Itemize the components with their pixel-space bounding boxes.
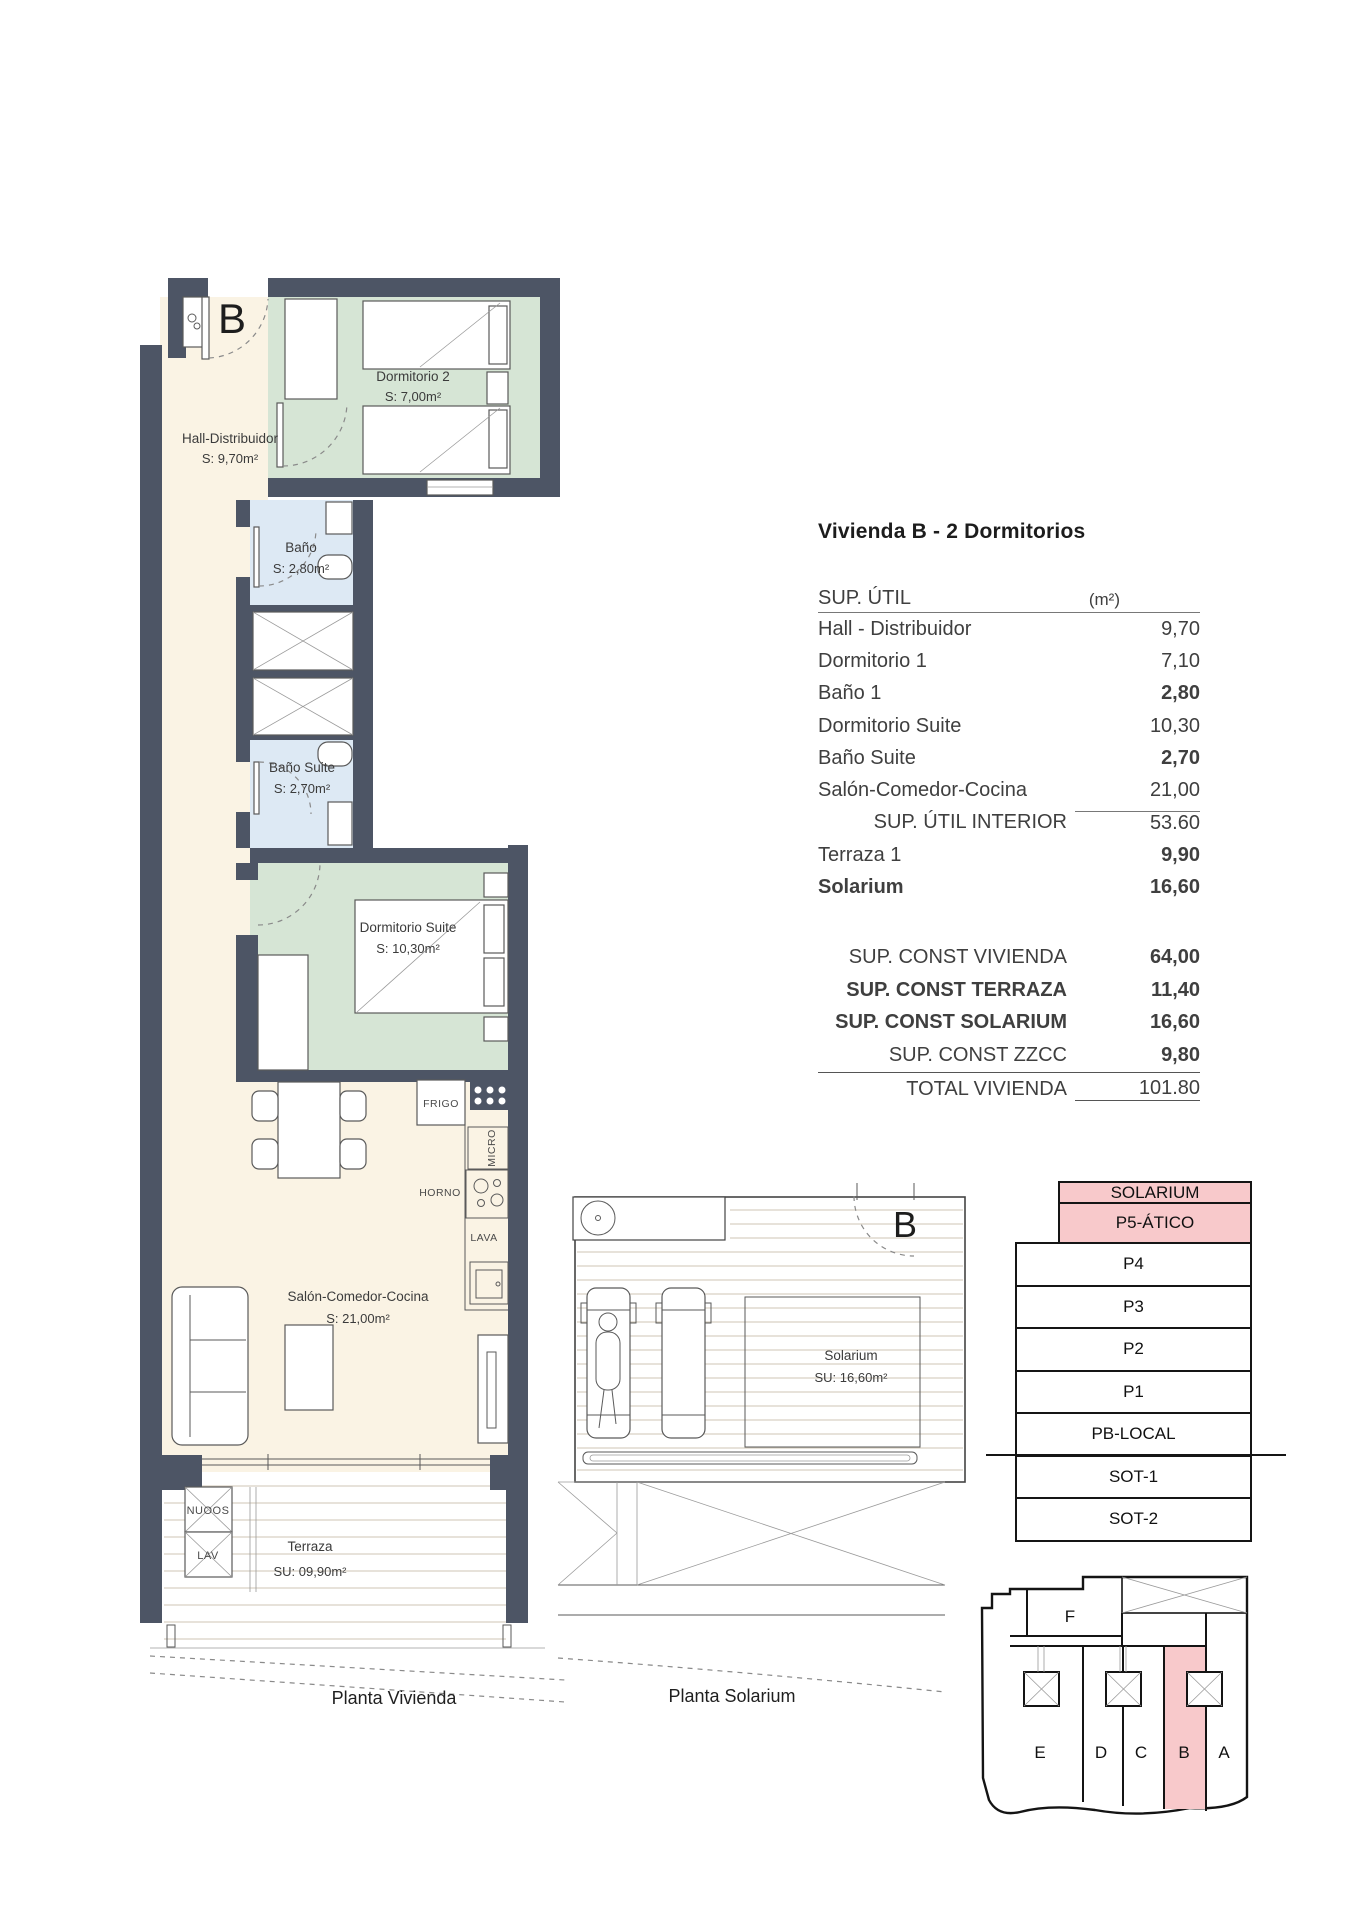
surface-table-header: SUP. ÚTIL (m²) xyxy=(818,584,1200,613)
terraza-area: SU: 09,90m² xyxy=(274,1564,348,1579)
dishwasher-label: LAVA xyxy=(470,1232,497,1244)
table-row: Dormitorio Suite10,30 xyxy=(818,710,1200,742)
bano-area: S: 2,80m² xyxy=(273,561,330,576)
site-key-plan: F E D C B A xyxy=(975,1568,1355,1918)
floor-plan-vivienda: FRIGO MICRO HORNO LAVA xyxy=(120,220,580,1720)
table-row: SUP. CONST TERRAZA11,40 xyxy=(818,974,1200,1007)
hob xyxy=(470,1082,508,1110)
chair xyxy=(252,1091,278,1121)
ground-line xyxy=(986,1454,1286,1456)
solarium-label: Solarium xyxy=(824,1348,877,1363)
bano-suite-area: S: 2,70m² xyxy=(274,781,331,796)
table-row: Terraza 19,90 xyxy=(818,839,1200,871)
dormitorio2-area: S: 7,00m² xyxy=(385,389,442,404)
microwave-label: MICRO xyxy=(486,1129,498,1167)
site-unit-d: D xyxy=(1095,1743,1107,1762)
dormitorio-suite-label: Dormitorio Suite xyxy=(360,920,457,935)
table-row: SUP. CONST ZZCC9,80 xyxy=(818,1039,1200,1072)
table-row: SUP. CONST SOLARIUM16,60 xyxy=(818,1006,1200,1039)
floor-plan-solarium: B Solarium SU: 16,60m² xyxy=(555,1175,975,1715)
salon-label: Salón-Comedor-Cocina xyxy=(287,1289,429,1304)
dining-table xyxy=(278,1082,340,1178)
header-unit: (m²) xyxy=(1075,590,1200,610)
hall-label: Hall-Distribuidor xyxy=(182,431,279,446)
table-row: SUP. CONST VIVIENDA64,00 xyxy=(818,941,1200,974)
fridge-label: FRIGO xyxy=(423,1098,459,1110)
door-leaf xyxy=(254,762,259,814)
surface-table: SUP. ÚTIL (m²) Hall - Distribuidor9,70 D… xyxy=(818,584,1200,904)
terraza-label: Terraza xyxy=(287,1539,333,1554)
caption-planta-vivienda: Planta Vivienda xyxy=(284,1688,504,1709)
table-row: Dormitorio 17,10 xyxy=(818,645,1200,677)
site-unit-a: A xyxy=(1218,1743,1230,1762)
level-p3: P3 xyxy=(1015,1285,1252,1330)
caption-planta-solarium: Planta Solarium xyxy=(622,1686,842,1707)
unit-letter: B xyxy=(893,1204,917,1245)
nudos-label: NUOOS xyxy=(187,1505,230,1517)
solarium-area: SU: 16,60m² xyxy=(815,1370,889,1385)
table-row: Baño Suite2,70 xyxy=(818,742,1200,774)
unit-letter: B xyxy=(218,295,246,342)
header-label: SUP. ÚTIL xyxy=(818,587,1075,610)
sofa xyxy=(172,1287,248,1445)
salon-area: S: 21,00m² xyxy=(326,1311,390,1326)
level-p4: P4 xyxy=(1015,1242,1252,1287)
bano-suite-label: Baño Suite xyxy=(269,760,335,775)
terraza-units: NUOOS LAV xyxy=(150,1487,565,1702)
wardrobe xyxy=(258,955,308,1070)
lav-label: LAV xyxy=(197,1550,219,1562)
level-sot-1: SOT-1 xyxy=(1015,1455,1252,1500)
bed xyxy=(363,406,510,474)
page-title: Vivienda B - 2 Dormitorios xyxy=(818,520,1085,544)
level-solarium: SOLARIUM xyxy=(1058,1181,1252,1204)
table-row-total: TOTAL VIVIENDA101.80 xyxy=(818,1072,1200,1106)
sink xyxy=(326,502,352,534)
table-row: Solarium16,60 xyxy=(818,871,1200,903)
table-row: Baño 12,80 xyxy=(818,678,1200,710)
table-row-subtotal: SUP. ÚTIL INTERIOR53.60 xyxy=(818,807,1200,839)
level-sot-2: SOT-2 xyxy=(1015,1497,1252,1542)
site-unit-f: F xyxy=(1065,1607,1075,1626)
railing-post xyxy=(503,1625,511,1647)
wardrobe xyxy=(285,299,337,399)
chair xyxy=(340,1139,366,1169)
door-leaf xyxy=(254,527,259,587)
railing-post xyxy=(167,1625,175,1647)
table-row: Salón-Comedor-Cocina21,00 xyxy=(818,774,1200,806)
window xyxy=(427,480,493,495)
bano-label: Baño xyxy=(285,540,317,555)
dormitorio2-label: Dormitorio 2 xyxy=(376,369,450,384)
site-unit-b: B xyxy=(1178,1743,1189,1762)
coffee-table xyxy=(285,1325,333,1410)
oven-label: HORNO xyxy=(419,1187,461,1199)
unit-b-highlight xyxy=(1164,1646,1206,1809)
dormitorio-suite-area: S: 10,30m² xyxy=(376,941,440,956)
structure-band xyxy=(558,1482,945,1692)
site-unit-e: E xyxy=(1034,1743,1045,1762)
hall-area: S: 9,70m² xyxy=(202,451,259,466)
chair xyxy=(252,1139,278,1169)
entrance-door-leaf xyxy=(202,297,209,359)
nightstand xyxy=(487,372,508,404)
level-pb-local: PB-LOCAL xyxy=(1015,1412,1252,1457)
nightstand xyxy=(484,873,508,897)
level-p2: P2 xyxy=(1015,1327,1252,1372)
bed xyxy=(363,301,510,369)
totals-table: SUP. CONST VIVIENDA64,00 SUP. CONST TERR… xyxy=(818,941,1200,1105)
nightstand xyxy=(484,1017,508,1041)
level-p5-atico: P5-ÁTICO xyxy=(1058,1202,1252,1244)
plan-sheet: FRIGO MICRO HORNO LAVA xyxy=(0,0,1357,1920)
chair xyxy=(340,1091,366,1121)
level-p1: P1 xyxy=(1015,1370,1252,1415)
sink xyxy=(328,802,352,845)
tv-unit xyxy=(478,1335,508,1443)
site-unit-c: C xyxy=(1135,1743,1147,1762)
levels-diagram: SOLARIUM P5-ÁTICO P4 P3 P2 P1 PB-LOCAL S… xyxy=(1015,1181,1252,1542)
table-row: Hall - Distribuidor9,70 xyxy=(818,613,1200,645)
